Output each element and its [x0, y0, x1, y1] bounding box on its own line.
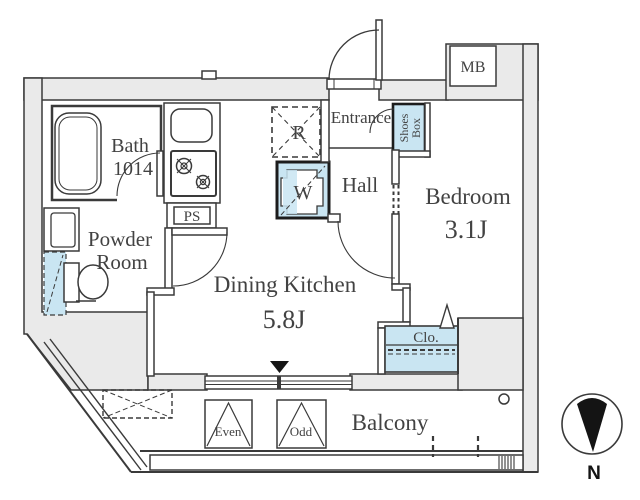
closet-label: Clo.	[413, 330, 438, 346]
dining-kitchen-size-label: 5.8J	[263, 305, 306, 334]
bathtub-icon	[55, 113, 101, 194]
entrance-label: Entrance	[331, 108, 391, 127]
floorplan-canvas: Bath 1014 PS Powder Room Dining Kitchen …	[0, 0, 640, 500]
powder-room-label-1: Powder	[88, 227, 152, 251]
section-marker	[270, 361, 289, 373]
powder-room-label-2: Room	[96, 250, 147, 274]
shoes-box-label-2: Box	[409, 118, 423, 138]
dk-window	[205, 361, 352, 389]
bedroom-size-label: 3.1J	[445, 215, 488, 244]
bedroom-label: Bedroom	[425, 184, 511, 209]
closet-door-mark	[440, 305, 454, 328]
bath-size-label: 1014	[113, 158, 153, 180]
washer-label: W	[294, 182, 313, 204]
north-label: N	[587, 463, 601, 484]
odd-label: Odd	[290, 424, 313, 439]
ps-label: PS	[184, 209, 201, 225]
hall-label: Hall	[342, 173, 378, 197]
bath-label: Bath	[111, 135, 149, 157]
even-label: Even	[215, 424, 242, 439]
vanity-sink-icon	[44, 208, 79, 251]
mb-label: MB	[461, 59, 486, 76]
balcony-label: Balcony	[352, 410, 429, 435]
floorplan-drawing: Bath 1014 PS Powder Room Dining Kitchen …	[0, 0, 640, 500]
toilet-cabinet	[44, 252, 66, 315]
refrigerator-label: R	[292, 122, 306, 144]
dining-kitchen-label: Dining Kitchen	[214, 272, 357, 297]
drain-icon	[499, 394, 509, 404]
entrance-door	[327, 20, 382, 89]
ac-unit-space	[103, 390, 172, 418]
north-arrow	[562, 394, 622, 454]
